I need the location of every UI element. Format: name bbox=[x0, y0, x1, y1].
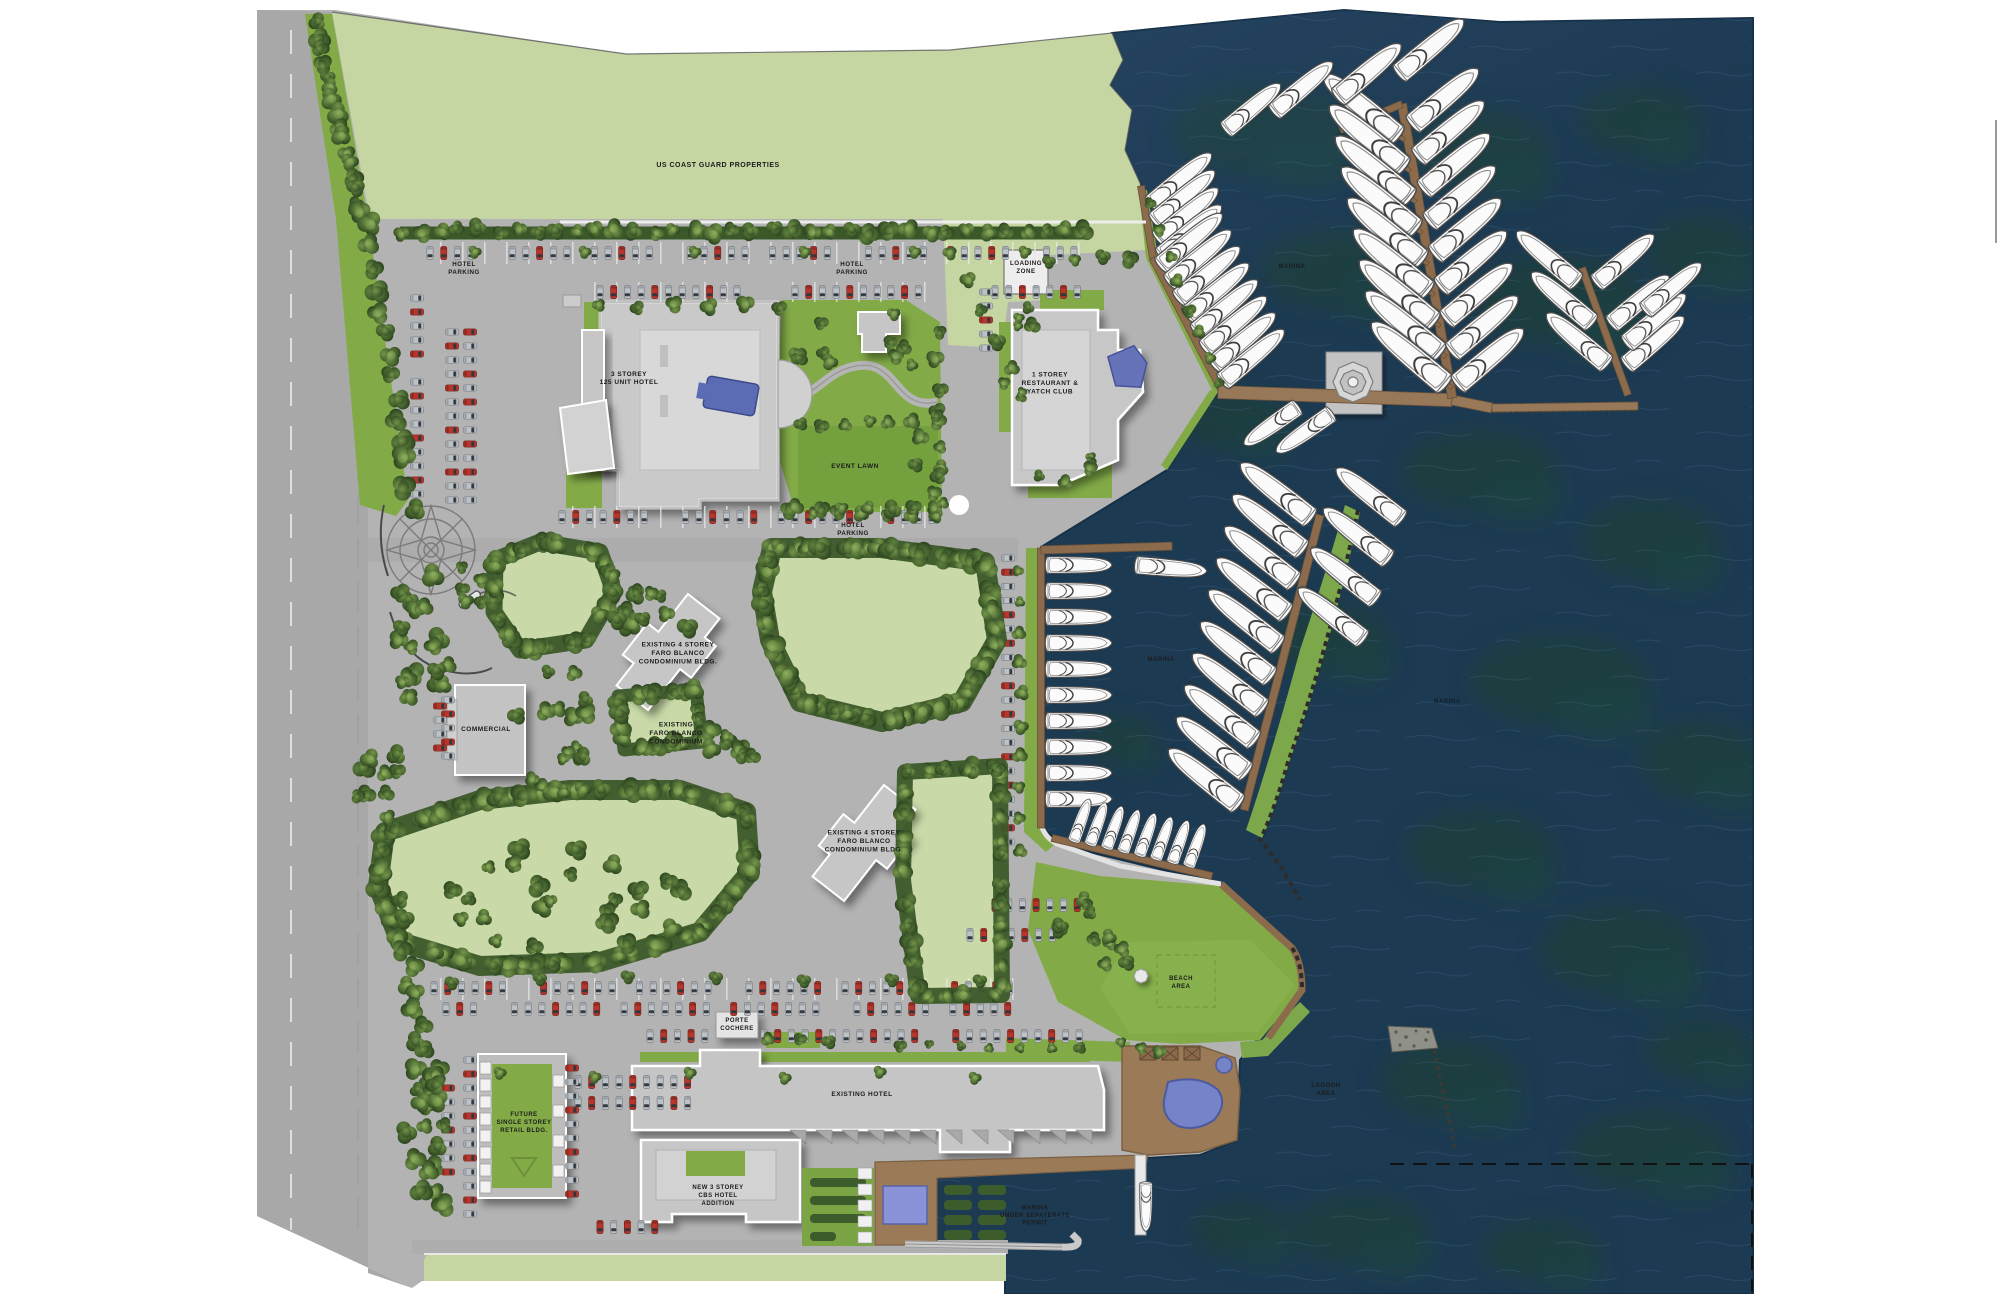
svg-text:HOTELPARKING: HOTELPARKING bbox=[837, 522, 869, 537]
svg-text:EVENT LAWN: EVENT LAWN bbox=[831, 463, 879, 470]
svg-text:COMMERCIAL: COMMERCIAL bbox=[461, 726, 511, 733]
svg-text:MARINA: MARINA bbox=[1279, 264, 1306, 270]
svg-text:BEACHAREA: BEACHAREA bbox=[1169, 976, 1193, 990]
svg-text:EXISTING HOTEL: EXISTING HOTEL bbox=[831, 1091, 892, 1098]
svg-text:MARINA: MARINA bbox=[1434, 699, 1461, 705]
svg-text:HOTELPARKING: HOTELPARKING bbox=[836, 261, 868, 276]
svg-text:US COAST GUARD PROPERTIES: US COAST GUARD PROPERTIES bbox=[656, 162, 779, 169]
svg-text:MARINA: MARINA bbox=[1148, 657, 1175, 663]
svg-text:HOTELPARKING: HOTELPARKING bbox=[448, 261, 480, 276]
